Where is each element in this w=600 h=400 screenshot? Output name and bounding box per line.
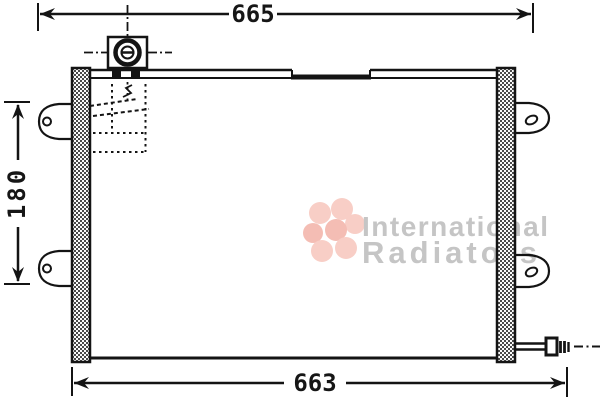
mounting-bracket-bottom-left bbox=[39, 251, 73, 286]
bracket-hole bbox=[524, 114, 538, 126]
technical-drawing-canvas: International Radiators 665 180 663 bbox=[0, 0, 600, 400]
top-dimension: 665 bbox=[38, 0, 533, 33]
logo-petal bbox=[303, 223, 323, 243]
break-squiggle bbox=[123, 85, 132, 97]
top-dimension-label: 665 bbox=[231, 0, 274, 28]
logo-petal bbox=[335, 237, 357, 259]
logo-petal bbox=[309, 202, 331, 224]
bottom-dimension: 663 bbox=[72, 367, 567, 397]
left-dimension-label: 180 bbox=[3, 167, 31, 219]
mounting-bracket-top-right bbox=[515, 103, 549, 133]
logo-petal bbox=[311, 240, 333, 262]
top-port-fitting bbox=[84, 5, 172, 78]
condenser-drawing: International Radiators 665 180 663 bbox=[0, 0, 600, 400]
fitting-foot bbox=[112, 68, 121, 78]
brand-logo-icon bbox=[303, 198, 365, 262]
bottom-dimension-label: 663 bbox=[293, 369, 336, 397]
left-header-tank bbox=[72, 68, 90, 362]
bracket-hole bbox=[43, 118, 51, 126]
mounting-bracket-top-left bbox=[39, 104, 73, 139]
right-header-tank bbox=[497, 68, 515, 362]
fitting-nut bbox=[546, 338, 557, 355]
hidden-hatch-line bbox=[93, 109, 149, 116]
outlet-pipe-fitting bbox=[515, 338, 600, 355]
left-dimension: 180 bbox=[3, 102, 31, 284]
bracket-hole bbox=[43, 265, 51, 273]
hidden-internal-lines bbox=[90, 82, 149, 152]
fitting-foot bbox=[131, 68, 140, 78]
hidden-hatch-line bbox=[90, 99, 137, 106]
